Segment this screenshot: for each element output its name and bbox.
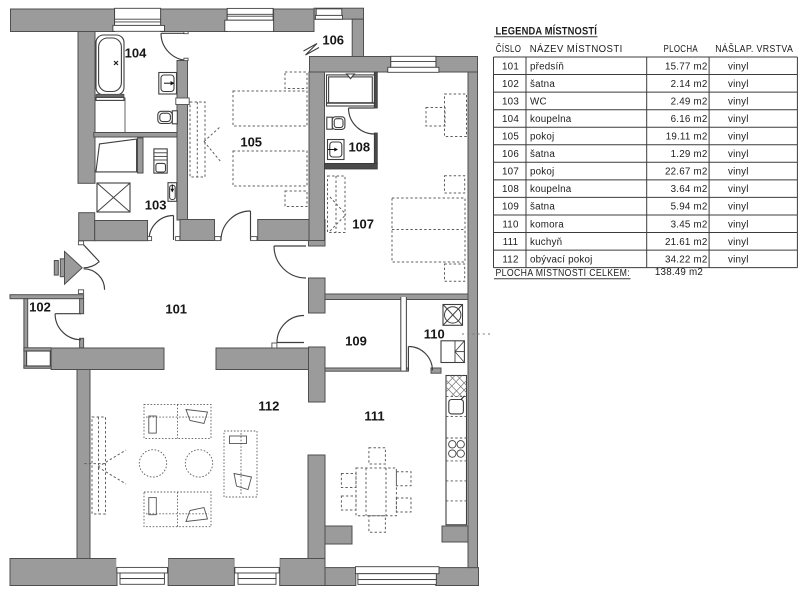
svg-text:6.16: 6.16 — [671, 114, 691, 125]
svg-text:101: 101 — [165, 302, 187, 317]
svg-text:pokoj: pokoj — [530, 167, 554, 178]
svg-text:vinyl: vinyl — [728, 61, 749, 72]
svg-text:138.49 m2: 138.49 m2 — [655, 267, 703, 278]
svg-text:vinyl: vinyl — [728, 202, 749, 213]
svg-text:vinyl: vinyl — [728, 79, 749, 90]
svg-text:m2: m2 — [694, 132, 708, 143]
svg-text:vinyl: vinyl — [728, 184, 749, 195]
svg-text:ČÍSLO: ČÍSLO — [496, 44, 522, 55]
svg-text:110: 110 — [502, 219, 519, 230]
svg-text:kuchyň: kuchyň — [530, 237, 562, 248]
svg-text:104: 104 — [125, 46, 147, 61]
svg-text:21.61: 21.61 — [665, 237, 691, 248]
svg-text:m2: m2 — [694, 149, 708, 160]
svg-text:111: 111 — [503, 237, 519, 248]
svg-text:3.64: 3.64 — [671, 184, 691, 195]
svg-text:vinyl: vinyl — [728, 132, 749, 143]
svg-text:NÁZEV MÍSTNOSTI: NÁZEV MÍSTNOSTI — [530, 44, 623, 55]
svg-text:3.45: 3.45 — [671, 219, 691, 230]
svg-text:m2: m2 — [694, 184, 708, 195]
svg-text:103: 103 — [145, 198, 167, 213]
svg-text:m2: m2 — [694, 202, 708, 213]
svg-text:vinyl: vinyl — [728, 237, 749, 248]
svg-text:šatna: šatna — [530, 79, 555, 90]
svg-text:m2: m2 — [694, 61, 708, 72]
svg-text:106: 106 — [502, 149, 519, 160]
svg-text:110: 110 — [424, 327, 445, 342]
svg-text:19.11: 19.11 — [666, 132, 691, 143]
svg-text:m2: m2 — [694, 79, 708, 90]
svg-text:PLOCHA MÍSTNOSTÍ CELKEM:: PLOCHA MÍSTNOSTÍ CELKEM: — [496, 268, 631, 279]
svg-text:103: 103 — [502, 96, 519, 107]
svg-text:108: 108 — [502, 184, 519, 195]
svg-text:107: 107 — [502, 167, 519, 178]
svg-text:105: 105 — [240, 135, 262, 150]
svg-text:5.94: 5.94 — [671, 202, 691, 213]
svg-text:34.22: 34.22 — [665, 254, 691, 265]
svg-text:112: 112 — [258, 399, 279, 414]
svg-text:vinyl: vinyl — [728, 149, 749, 160]
svg-text:komora: komora — [530, 219, 564, 230]
svg-text:101: 101 — [502, 61, 519, 72]
svg-text:m2: m2 — [694, 219, 708, 230]
svg-text:WC: WC — [530, 96, 547, 107]
svg-text:m2: m2 — [694, 167, 708, 178]
svg-text:102: 102 — [29, 300, 51, 315]
svg-text:104: 104 — [502, 114, 519, 125]
svg-text:vinyl: vinyl — [728, 114, 749, 125]
svg-text:111: 111 — [364, 409, 384, 424]
svg-text:m2: m2 — [694, 237, 708, 248]
svg-text:předsíň: předsíň — [530, 61, 564, 72]
svg-text:108: 108 — [348, 140, 370, 155]
svg-text:109: 109 — [345, 334, 367, 349]
svg-text:105: 105 — [502, 132, 519, 143]
svg-text:LEGENDA MÍSTNOSTÍ: LEGENDA MÍSTNOSTÍ — [496, 25, 598, 38]
svg-text:m2: m2 — [694, 114, 708, 125]
svg-text:šatna: šatna — [530, 202, 555, 213]
svg-text:m2: m2 — [694, 254, 708, 265]
svg-text:15.77: 15.77 — [665, 61, 691, 72]
svg-text:NÁŠLAP. VRSTVA: NÁŠLAP. VRSTVA — [715, 44, 793, 55]
svg-text:1.29: 1.29 — [671, 149, 691, 160]
svg-text:106: 106 — [322, 33, 344, 48]
svg-text:109: 109 — [502, 202, 519, 213]
svg-text:102: 102 — [502, 79, 519, 90]
svg-text:vinyl: vinyl — [728, 219, 749, 230]
svg-text:PLOCHA: PLOCHA — [664, 44, 699, 55]
svg-text:22.67: 22.67 — [665, 167, 691, 178]
svg-text:pokoj: pokoj — [530, 132, 554, 143]
svg-text:vinyl: vinyl — [728, 96, 749, 107]
svg-text:107: 107 — [352, 217, 374, 232]
svg-text:koupelna: koupelna — [530, 114, 572, 125]
svg-text:2.14: 2.14 — [671, 79, 691, 90]
svg-text:šatna: šatna — [530, 149, 555, 160]
svg-text:m2: m2 — [694, 96, 708, 107]
svg-text:112: 112 — [502, 254, 518, 265]
svg-text:2.49: 2.49 — [671, 96, 691, 107]
svg-text:vinyl: vinyl — [728, 254, 749, 265]
svg-text:vinyl: vinyl — [728, 167, 749, 178]
svg-text:obývací pokoj: obývací pokoj — [530, 254, 593, 265]
svg-text:koupelna: koupelna — [530, 184, 572, 195]
